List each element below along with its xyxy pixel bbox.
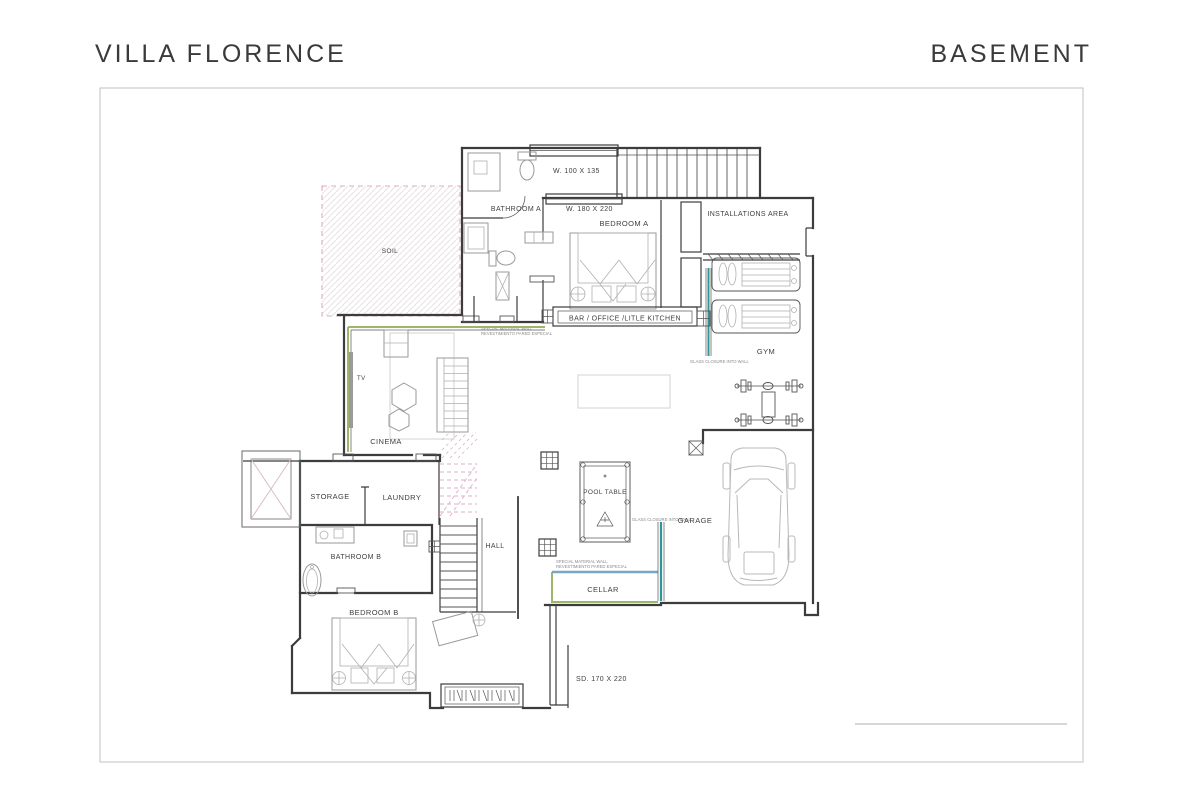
pool-table: POOL TABLE xyxy=(580,462,630,542)
wall-sd-jamb xyxy=(550,605,568,708)
wall-storage-laundry-divider xyxy=(361,487,369,525)
shower-tray xyxy=(468,153,500,191)
pocket-tr xyxy=(625,463,629,467)
gym-glass-label: GLASS CLOSURE INTO WALL xyxy=(690,359,750,364)
soil-label: SOIL xyxy=(382,248,398,255)
column-1-grid xyxy=(541,452,558,469)
hall-label: HALL xyxy=(485,543,504,550)
elevator xyxy=(242,451,300,527)
bed-a-folds xyxy=(580,260,655,301)
car-windshield xyxy=(735,479,783,493)
sink-a-basin xyxy=(468,227,484,249)
car-wheel-fl xyxy=(723,463,730,489)
bedroom-a: BEDROOM A xyxy=(570,219,656,309)
treadmill-2-roller-b xyxy=(728,305,736,327)
sofa-cushions xyxy=(444,358,468,432)
sofa-frame xyxy=(437,358,468,432)
installations-door xyxy=(806,228,813,256)
garage: GARAGE xyxy=(678,441,795,585)
bed-a xyxy=(570,233,656,309)
special-wall-note-2-es: REVESTIMIENTO PARED ESPECIAL xyxy=(556,564,628,569)
treadmill-1-knob-a xyxy=(792,266,797,271)
tv-screen xyxy=(349,352,353,428)
pocket-tl xyxy=(581,463,585,467)
garage-label: GARAGE xyxy=(678,516,713,525)
column-1 xyxy=(541,452,558,469)
laundry-label: LAUNDRY xyxy=(383,493,422,502)
vanity-b-basin xyxy=(320,531,328,539)
laundry-sink-basin xyxy=(407,534,414,543)
treadmill-2-slats xyxy=(742,311,790,323)
laundry-sink xyxy=(404,531,417,546)
vanity-b xyxy=(316,527,354,543)
cinema-green-wall xyxy=(348,327,545,452)
desk-rotated xyxy=(433,611,478,646)
window-w100-label: W. 100 X 135 xyxy=(553,168,600,175)
soil-area: SOIL xyxy=(322,186,460,316)
gym-counter-hatch xyxy=(708,254,793,260)
cinema: TV CINEMA xyxy=(348,327,545,452)
special-wall-note-1-es: REVESTIMIENTO PARED ESPECIAL xyxy=(481,331,553,336)
car-wheel-fr xyxy=(788,463,795,489)
tv-label: TV xyxy=(357,376,365,382)
pocket-bl xyxy=(581,537,585,541)
wall-garage-bottom xyxy=(661,603,818,615)
sheet-frame xyxy=(100,88,1083,762)
bar-label: BAR / OFFICE /LITLE KITCHEN xyxy=(569,316,681,323)
pocket-mr xyxy=(625,500,629,504)
treadmill-2-knob-a xyxy=(792,308,797,313)
pocket-ml xyxy=(581,500,585,504)
stair-column-cross xyxy=(429,541,440,552)
louver-strip-2 xyxy=(681,258,701,307)
bed-a-mattress xyxy=(578,233,648,283)
bedroom-b-label: BEDROOM B xyxy=(349,608,398,617)
cue-spot xyxy=(604,475,606,477)
storage-laundry: STORAGE LAUNDRY xyxy=(310,492,421,502)
car-hood-line xyxy=(734,466,784,470)
garage-column-cross xyxy=(689,441,703,455)
staircase-top xyxy=(617,149,760,197)
installations-label: INSTALLATIONS AREA xyxy=(707,211,788,218)
car xyxy=(723,448,795,585)
car-roof-lines xyxy=(737,495,781,548)
car-rear-line xyxy=(740,578,777,581)
bedroom-a-label: BEDROOM A xyxy=(599,219,648,228)
bed-b-mattress xyxy=(340,618,408,666)
shower-drain xyxy=(474,161,487,174)
treadmill-2-knob-b xyxy=(792,321,797,326)
beanbag-1 xyxy=(392,383,416,411)
column-2-grid xyxy=(539,539,556,556)
bathtub-faucet xyxy=(311,566,314,569)
wall-bedroomb-bottom xyxy=(292,693,550,708)
bed-b-pillow-1 xyxy=(351,668,368,683)
rack-triangle xyxy=(597,512,613,526)
treadmill-2-roller-a xyxy=(719,305,727,327)
hall-staircase: HALL xyxy=(429,432,518,618)
louver-strip-1 xyxy=(681,202,701,252)
sliding-door-label: SD. 170 X 220 xyxy=(576,676,627,683)
beanbag-2 xyxy=(389,409,409,431)
pool-table-outer xyxy=(580,462,630,542)
treadmill-1-roller-a xyxy=(719,263,727,285)
toilet-a2-tank xyxy=(489,251,496,266)
treadmill-1-knob-b xyxy=(792,279,797,284)
bathroom-a-label: BATHROOM A xyxy=(491,206,541,213)
pool-table-label: POOL TABLE xyxy=(583,489,627,496)
bathroom-b-label: BATHROOM B xyxy=(331,554,382,561)
cellar-label: CELLAR xyxy=(587,585,619,594)
cinema-side-table xyxy=(384,330,408,357)
games-area: POOL TABLE xyxy=(539,375,670,556)
stair-treads-top xyxy=(627,149,747,197)
grille-inner xyxy=(445,687,519,704)
barbell-station xyxy=(735,380,803,426)
bed-b xyxy=(332,618,416,690)
vanity-b-faucet xyxy=(334,529,343,538)
desk xyxy=(433,611,478,646)
island-table xyxy=(578,375,670,408)
pocket-br xyxy=(625,537,629,541)
treadmill-1-deck xyxy=(742,263,790,286)
storage-label: STORAGE xyxy=(310,492,349,501)
treadmill-2 xyxy=(712,300,800,333)
bedrooma-door-leaf xyxy=(530,276,554,282)
bathroom-b: BATHROOM B xyxy=(303,527,417,596)
column-2 xyxy=(539,539,556,556)
bed-a-pillow-2 xyxy=(617,286,636,302)
treadmill-2-deck xyxy=(742,305,790,328)
bench xyxy=(762,392,775,417)
treadmill-1 xyxy=(712,258,800,291)
wall-shelf-dividers xyxy=(534,232,543,243)
wall-shelf xyxy=(525,232,553,243)
floor-grille xyxy=(441,684,523,707)
treadmill-1-slats xyxy=(742,269,790,281)
wall-garage-top xyxy=(703,430,813,443)
treadmill-1-roller-b xyxy=(728,263,736,285)
elevator-cross xyxy=(251,459,291,519)
window-w180-label: W. 180 X 220 xyxy=(566,206,613,213)
car-rear-window xyxy=(744,552,774,574)
wall-left-wing xyxy=(292,461,300,693)
grille-slats xyxy=(450,690,514,701)
cabinet-a-cross xyxy=(496,272,509,300)
bathroomb-door-leaf xyxy=(337,588,355,593)
stair-treads-solid xyxy=(440,526,477,607)
floorplan-canvas: SOIL xyxy=(0,0,1200,800)
cellar: CELLAR SPECIAL MATERIAL WALL REVESTIMIEN… xyxy=(552,517,692,602)
toilet-a2-bowl xyxy=(497,251,515,265)
toilet-a-bowl xyxy=(520,160,534,180)
bathroom-a: BATHROOM A xyxy=(462,152,553,322)
gym-label: GYM xyxy=(757,347,775,356)
cinema-label: CINEMA xyxy=(370,437,402,446)
gym: GYM xyxy=(690,258,803,426)
bathtub-inner xyxy=(307,569,318,593)
cinema-sofa xyxy=(437,358,468,432)
landing-hatch-pink xyxy=(442,432,478,458)
gym-counter xyxy=(703,254,800,260)
